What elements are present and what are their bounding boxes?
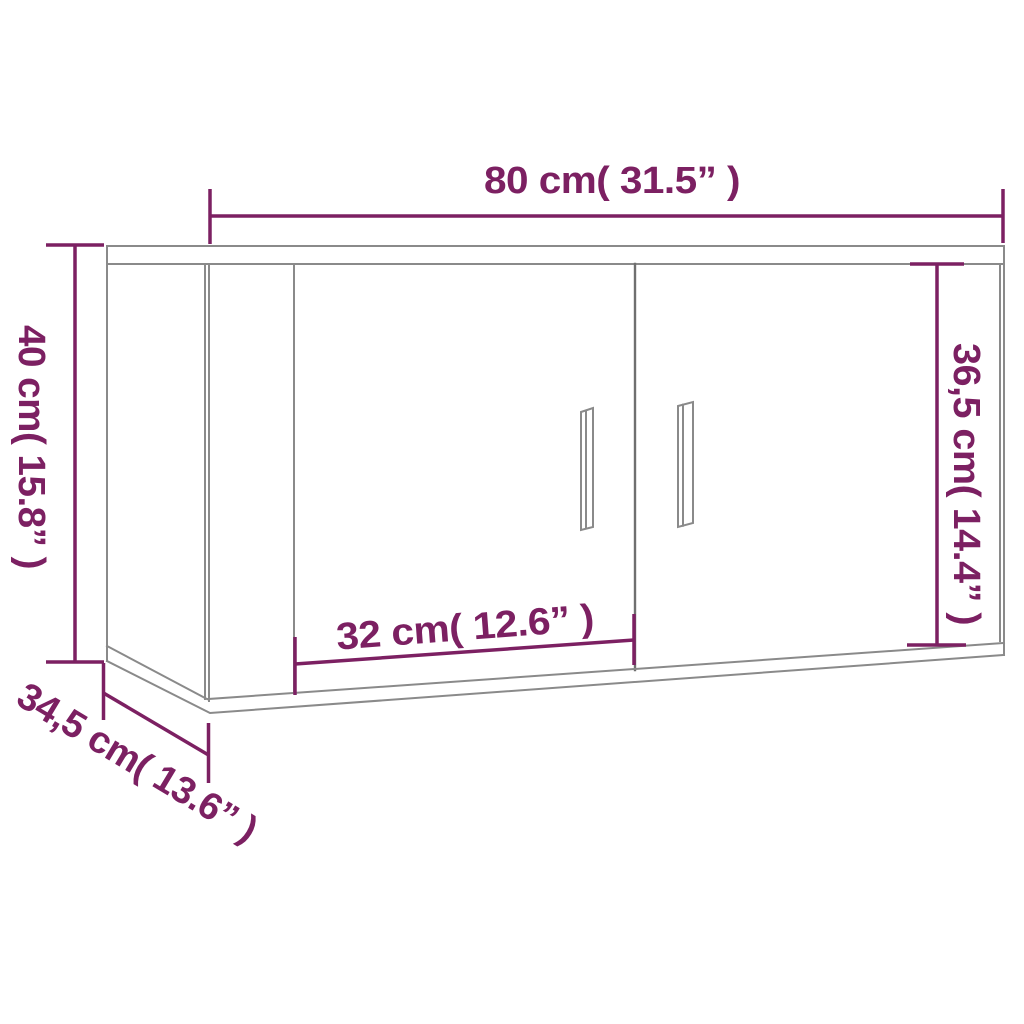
left-door-handle [581,408,593,530]
width-dimension-label: 80 cm( 31.5” ) [484,160,740,202]
dimension-inner-height: 36,5 cm( 14.4” ) [907,264,987,645]
cabinet-line-art [107,246,1004,713]
cabinet-bottom-left-side-edge [107,646,207,699]
door-width-dimension-label: 32 cm( 12.6” ) [335,597,595,658]
height-dimension-label: 40 cm( 15.8” ) [10,325,52,569]
cabinet-bottom-panel-lower-edge [107,655,1004,713]
dimension-width: 80 cm( 31.5” ) [210,160,1003,244]
cabinet-bottom-front-edge [208,643,1004,699]
cabinet-dimension-diagram: 80 cm( 31.5” ) 40 cm( 15.8” ) 36,5 cm( 1… [0,0,1024,1024]
right-door-handle [678,402,693,527]
dimension-diagram-page: 80 cm( 31.5” ) 40 cm( 15.8” ) 36,5 cm( 1… [0,0,1024,1024]
inner-height-dimension-label: 36,5 cm( 14.4” ) [945,343,987,625]
dimension-depth: 34,5 cm( 13.6” ) [10,663,265,851]
right-door-handle-outline [678,402,693,527]
depth-dimension-label: 34,5 cm( 13.6” ) [10,675,265,851]
dimension-height: 40 cm( 15.8” ) [10,245,104,662]
